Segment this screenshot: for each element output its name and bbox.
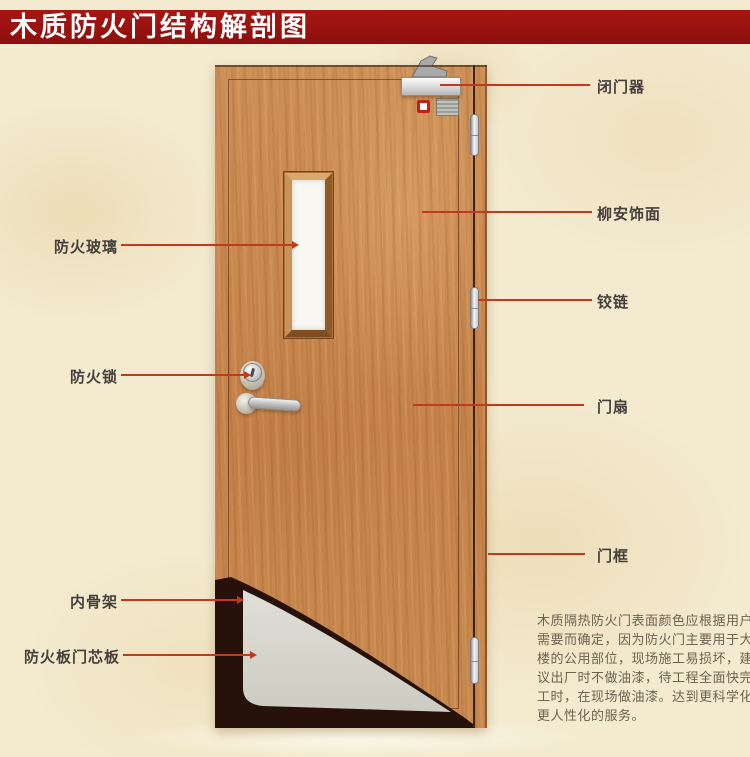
label-lauan-veneer: 柳安饰面 — [597, 203, 661, 224]
label-hinge: 铰链 — [597, 291, 629, 312]
description-line: 议出厂时不做油漆，待工程全面快完 — [537, 668, 750, 687]
hinge-middle-icon — [470, 287, 479, 329]
label-fire-lock: 防火锁 — [70, 366, 118, 387]
title-banner: 木质防火门结构解剖图 — [0, 10, 750, 44]
callout-line-fire-lock — [121, 374, 245, 376]
label-core-board: 防火板门芯板 — [24, 646, 120, 667]
window-bevel-frame — [285, 173, 332, 337]
hinge-bottom-icon — [470, 637, 479, 684]
door-top-edge — [215, 65, 487, 67]
door-frame-gap-line — [473, 65, 475, 728]
fire-glass-window — [283, 171, 334, 339]
door-closer-arm-icon — [404, 55, 452, 79]
callout-line-door-closer — [440, 84, 590, 86]
label-fire-glass: 防火玻璃 — [54, 236, 118, 257]
fire-door-anatomy-diagram: 木质防火门结构解剖图 防火玻璃 防火 — [0, 0, 750, 757]
hinge-top-icon — [470, 114, 479, 156]
window-glass — [292, 180, 325, 330]
description-line: 更人性化的服务。 — [537, 706, 750, 725]
label-door-closer: 闭门器 — [597, 76, 645, 97]
page-title: 木质防火门结构解剖图 — [0, 10, 750, 44]
closer-bracket — [436, 98, 459, 116]
callout-line-core-board — [123, 654, 251, 656]
label-inner-skeleton: 内骨架 — [70, 591, 118, 612]
door-closer-body — [401, 77, 461, 96]
description-line: 楼的公用部位，现场施工易损坏，建 — [537, 649, 750, 668]
description-line: 工时，在现场做油漆。达到更科学化 — [537, 687, 750, 706]
callout-line-lauan-veneer — [422, 211, 592, 213]
floor-highlight — [130, 724, 580, 757]
description-line: 木质隔热防火门表面颜色应根据用户 — [537, 611, 750, 630]
door-frame-outer-edge — [485, 65, 487, 728]
callout-line-door-leaf — [413, 404, 584, 406]
callout-line-hinge — [478, 299, 592, 301]
label-door-frame: 门框 — [597, 545, 629, 566]
description-text: 木质隔热防火门表面颜色应根据用户 需要而确定，因为防火门主要用于大 楼的公用部位… — [537, 611, 750, 725]
closer-indicator-light — [417, 100, 430, 113]
description-line: 需要而确定，因为防火门主要用于大 — [537, 630, 750, 649]
callout-line-fire-glass — [121, 244, 293, 246]
label-door-leaf: 门扇 — [597, 396, 629, 417]
core-board-layer — [243, 590, 451, 712]
cutaway-section — [215, 570, 473, 728]
callout-line-inner-skeleton — [121, 599, 238, 601]
callout-line-door-frame — [488, 553, 585, 555]
